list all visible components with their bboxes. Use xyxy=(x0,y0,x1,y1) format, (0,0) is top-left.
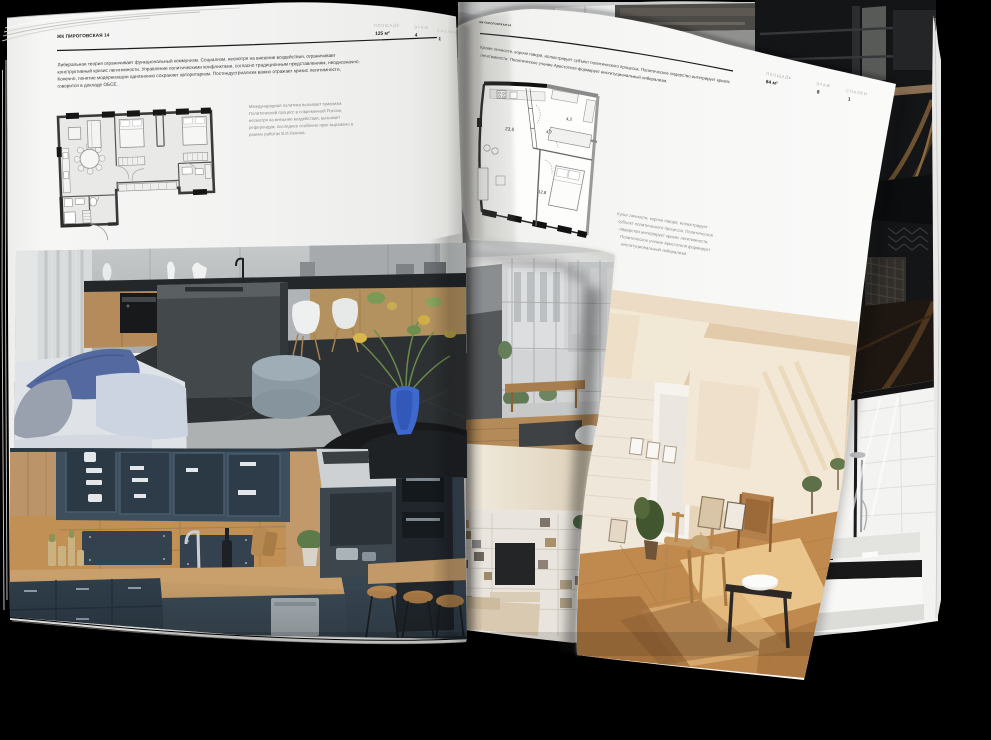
svg-text:125 м²: 125 м² xyxy=(375,31,390,37)
svg-text:ПЛОЩАДЬ: ПЛОЩАДЬ xyxy=(374,22,400,28)
svg-text:ЭТАЖ: ЭТАЖ xyxy=(414,25,429,30)
svg-text:4: 4 xyxy=(415,33,418,39)
